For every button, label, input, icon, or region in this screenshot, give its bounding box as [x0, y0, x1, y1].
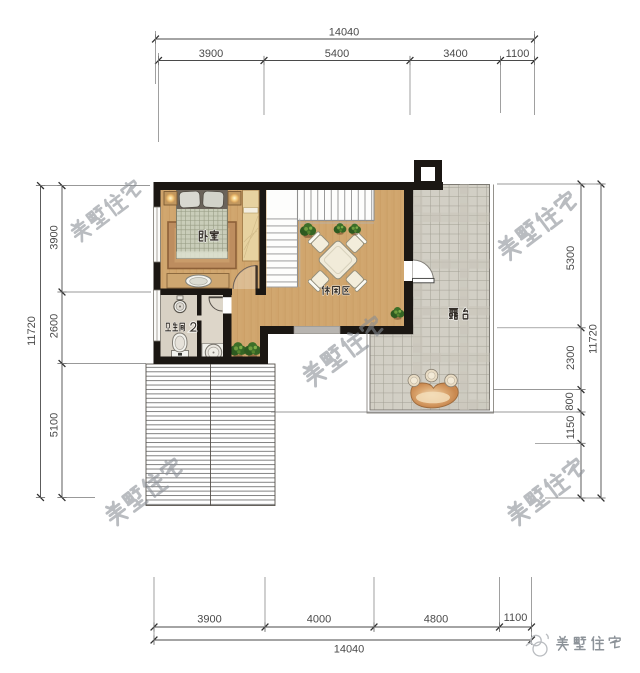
svg-text:4000: 4000 — [307, 614, 331, 626]
svg-text:1100: 1100 — [504, 612, 528, 624]
svg-text:3400: 3400 — [443, 48, 467, 60]
svg-text:800: 800 — [564, 392, 576, 410]
svg-text:5100: 5100 — [49, 413, 61, 437]
svg-text:3900: 3900 — [49, 225, 61, 249]
svg-text:5300: 5300 — [565, 246, 577, 270]
svg-text:3900: 3900 — [199, 48, 223, 60]
svg-text:2600: 2600 — [49, 314, 61, 338]
svg-text:11720: 11720 — [26, 316, 38, 346]
svg-text:1150: 1150 — [565, 416, 577, 440]
svg-text:14040: 14040 — [334, 644, 365, 656]
svg-text:1100: 1100 — [506, 48, 530, 60]
svg-text:11720: 11720 — [588, 324, 600, 354]
svg-text:3900: 3900 — [197, 614, 221, 626]
svg-text:5400: 5400 — [325, 48, 349, 60]
svg-text:2300: 2300 — [565, 346, 577, 370]
svg-text:14040: 14040 — [329, 27, 360, 39]
svg-text:4800: 4800 — [424, 614, 448, 626]
